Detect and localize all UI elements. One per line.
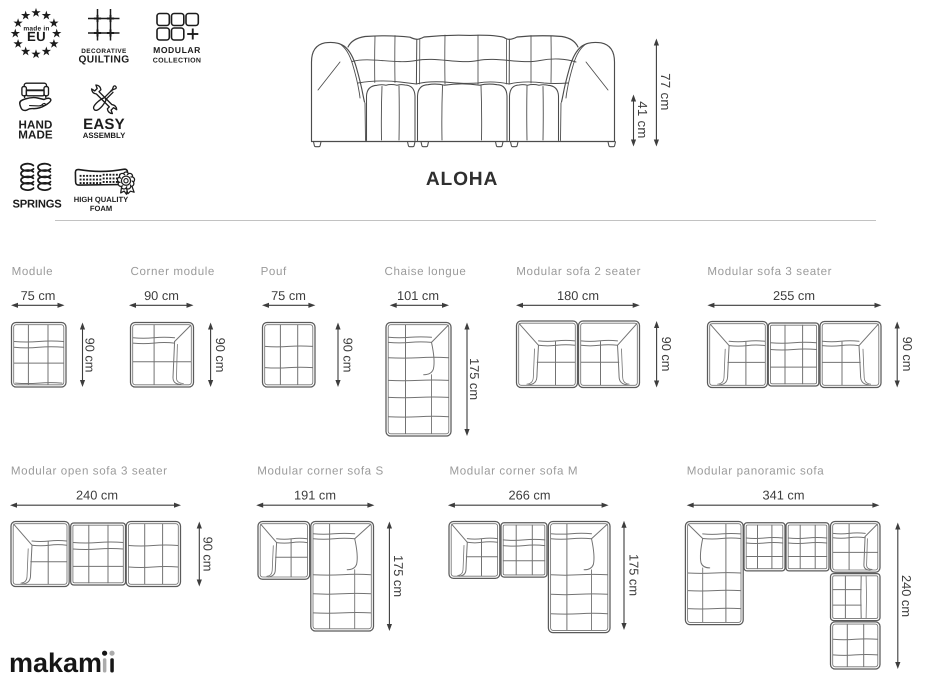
svg-text:Module: Module bbox=[12, 265, 54, 278]
svg-text:Modular sofa 2 seater: Modular sofa 2 seater bbox=[516, 265, 641, 278]
svg-text:180 cm: 180 cm bbox=[557, 288, 599, 303]
svg-text:COLLECTION: COLLECTION bbox=[153, 57, 202, 64]
svg-text:191 cm: 191 cm bbox=[294, 488, 336, 503]
svg-text:90 cm: 90 cm bbox=[82, 338, 97, 373]
svg-text:41 cm: 41 cm bbox=[635, 101, 650, 138]
svg-text:75 cm: 75 cm bbox=[271, 288, 306, 303]
svg-text:MADE: MADE bbox=[18, 128, 53, 141]
svg-text:Modular open sofa 3 seater: Modular open sofa 3 seater bbox=[11, 465, 168, 478]
svg-text:Pouf: Pouf bbox=[261, 265, 287, 278]
svg-text:Modular sofa 3 seater: Modular sofa 3 seater bbox=[707, 265, 832, 278]
svg-text:90 cm: 90 cm bbox=[144, 288, 179, 303]
svg-text:240 cm: 240 cm bbox=[76, 488, 118, 503]
svg-text:Modular corner sofa S: Modular corner sofa S bbox=[257, 465, 384, 478]
svg-text:75 cm: 75 cm bbox=[21, 288, 56, 303]
svg-text:SPRINGS: SPRINGS bbox=[13, 198, 63, 210]
svg-text:240 cm: 240 cm bbox=[899, 575, 914, 617]
svg-text:Chaise longue: Chaise longue bbox=[385, 265, 467, 278]
svg-text:90 cm: 90 cm bbox=[340, 338, 355, 373]
svg-text:ASSEMBLY: ASSEMBLY bbox=[83, 131, 126, 140]
svg-text:90 cm: 90 cm bbox=[213, 338, 228, 373]
svg-text:255 cm: 255 cm bbox=[773, 288, 815, 303]
svg-text:175 cm: 175 cm bbox=[467, 358, 482, 400]
svg-text:EU: EU bbox=[27, 29, 46, 44]
svg-text:90 cm: 90 cm bbox=[659, 337, 674, 372]
svg-text:175 cm: 175 cm bbox=[627, 554, 642, 596]
svg-text:90 cm: 90 cm bbox=[900, 337, 915, 372]
svg-text:266 cm: 266 cm bbox=[509, 488, 551, 503]
svg-text:175 cm: 175 cm bbox=[391, 555, 406, 597]
svg-text:90 cm: 90 cm bbox=[201, 537, 216, 572]
svg-text:101 cm: 101 cm bbox=[397, 288, 439, 303]
svg-text:MODULAR: MODULAR bbox=[153, 45, 201, 55]
svg-text:Modular corner sofa M: Modular corner sofa M bbox=[450, 465, 579, 478]
svg-text:ALOHA: ALOHA bbox=[426, 169, 498, 190]
svg-text:makam: makam bbox=[9, 648, 102, 678]
svg-text:HIGH QUALITY: HIGH QUALITY bbox=[74, 195, 128, 204]
svg-text:FOAM: FOAM bbox=[90, 204, 112, 213]
svg-text:341 cm: 341 cm bbox=[763, 488, 805, 503]
svg-text:Modular panoramic sofa: Modular panoramic sofa bbox=[687, 465, 825, 478]
svg-text:77 cm: 77 cm bbox=[658, 73, 673, 110]
svg-text:QUILTING: QUILTING bbox=[78, 55, 129, 66]
svg-text:Corner module: Corner module bbox=[131, 265, 215, 278]
